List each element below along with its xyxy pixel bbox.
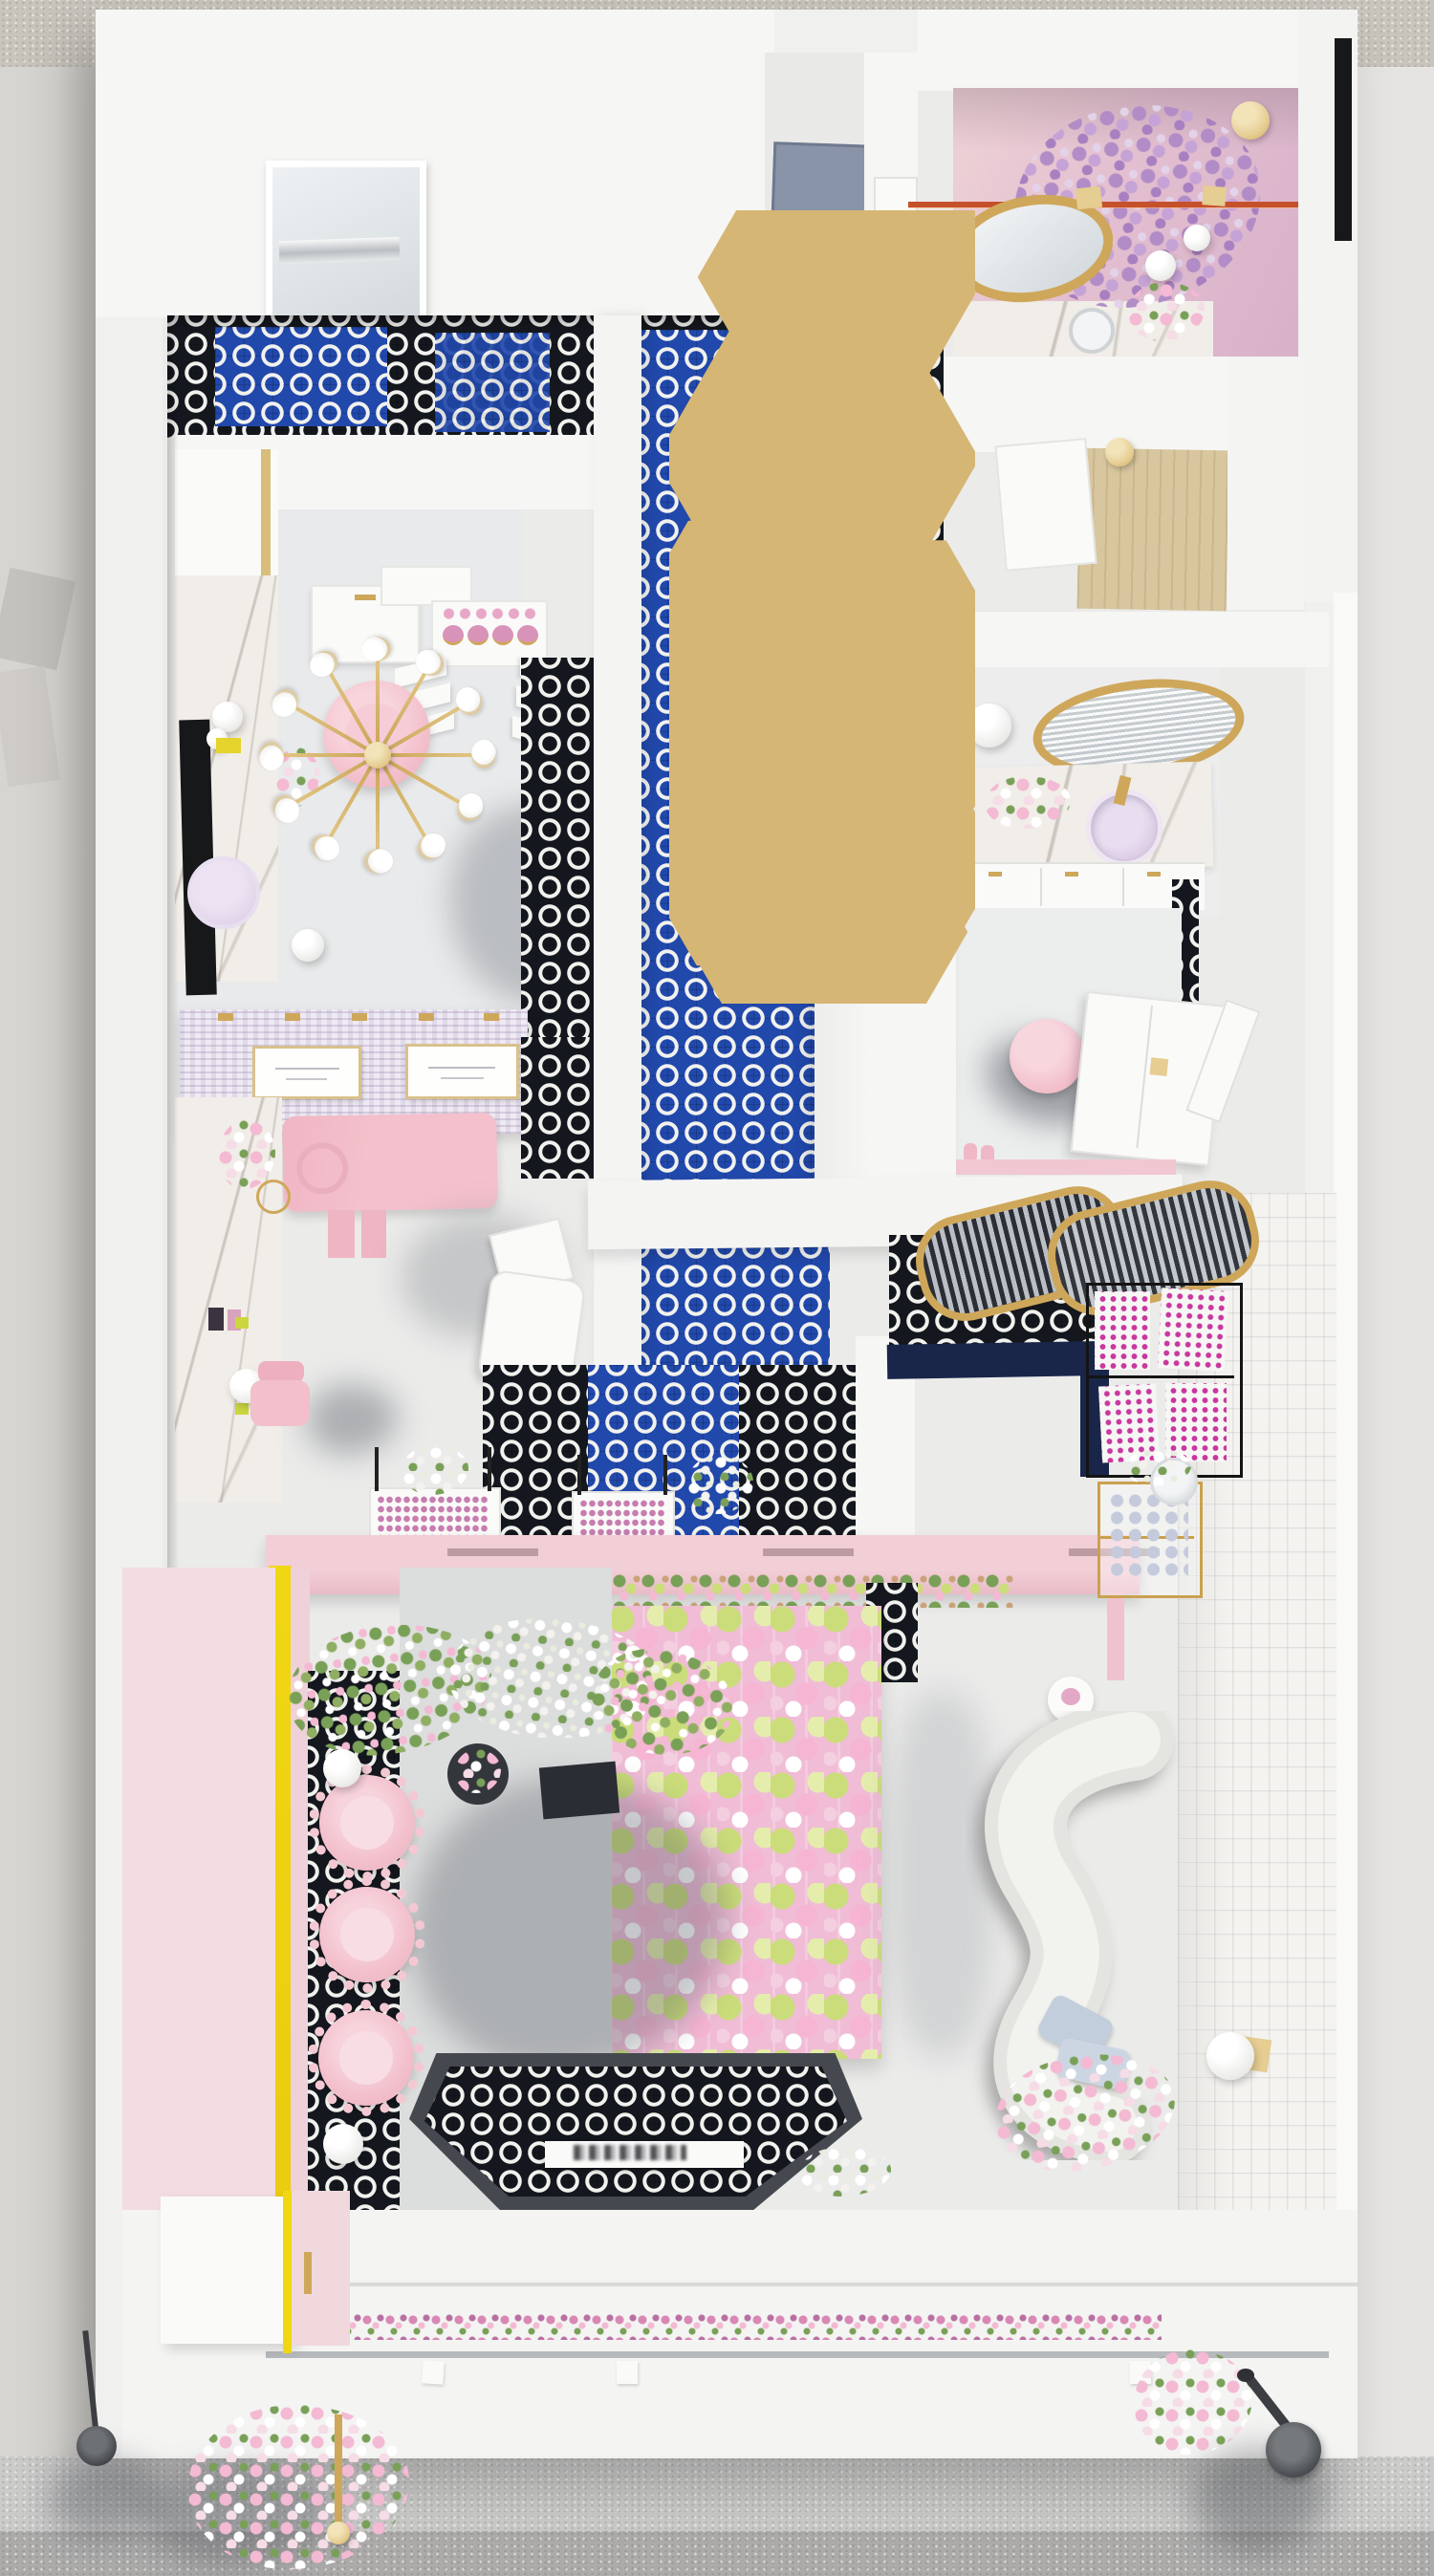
pink-round-chair xyxy=(1010,1019,1084,1093)
chandelier-spoke xyxy=(376,652,380,755)
planter-blossoms xyxy=(455,1749,501,1793)
perfume-bottles xyxy=(208,1308,224,1331)
bed-stool xyxy=(361,1210,386,1258)
bar-slot xyxy=(447,1548,538,1556)
polish-box xyxy=(1165,1383,1227,1461)
white-wardrobe xyxy=(1071,991,1227,1166)
gold-slider xyxy=(1075,186,1102,210)
gold-handle xyxy=(355,595,376,600)
vestibule-pillar xyxy=(161,2197,293,2344)
gold-clip xyxy=(352,1013,367,1021)
pendant-ball xyxy=(1145,250,1176,281)
polish-box xyxy=(1095,1291,1150,1370)
chandelier-hub xyxy=(364,742,391,768)
storage-desk xyxy=(994,438,1097,572)
script-sign xyxy=(252,1046,361,1099)
gold-bar-cart xyxy=(1097,1482,1203,1598)
glass-mullion xyxy=(617,2361,638,2384)
ball-lamp xyxy=(323,1749,361,1787)
lavender-mirror xyxy=(187,856,260,929)
black-wall-bar xyxy=(1335,38,1352,241)
navy-edge-band xyxy=(887,1341,1098,1379)
polish-rows xyxy=(579,1499,665,1537)
bar-slot xyxy=(763,1548,854,1556)
gold-door-handle xyxy=(304,2252,312,2294)
storage-wood-floor xyxy=(1077,448,1229,612)
entry-mat xyxy=(409,2053,862,2210)
bed-headrest xyxy=(296,1142,349,1195)
bar-leg xyxy=(1107,1592,1124,1680)
left-lamp-head xyxy=(76,2426,117,2466)
box-planter xyxy=(539,1762,619,1820)
chandelier-spoke xyxy=(274,753,378,757)
tile-strip-right xyxy=(521,658,594,1040)
gold-clip xyxy=(218,1013,233,1021)
salon-render xyxy=(0,0,1434,2576)
pink-office-chair xyxy=(250,1361,314,1428)
ball-lamp xyxy=(292,929,324,962)
gold-handle xyxy=(1149,1057,1168,1076)
chandelier-spoke xyxy=(378,753,481,757)
scalloped-armchair xyxy=(319,1887,415,1982)
vanity-cabinets xyxy=(960,862,1205,910)
lime-accent xyxy=(235,1403,249,1415)
scalloped-armchair xyxy=(318,2010,414,2106)
stand-post xyxy=(488,1447,491,1491)
metal-display-shelf xyxy=(1086,1283,1243,1478)
gold-ball-lamp xyxy=(1105,438,1134,466)
vanity-room-band xyxy=(952,612,1329,667)
stand-post xyxy=(577,1455,581,1495)
chandelier-spoke xyxy=(376,755,380,858)
storage-wall-right xyxy=(1228,357,1304,610)
wall-shadow-left xyxy=(167,315,179,1568)
gold-pendant-ball xyxy=(327,2522,350,2544)
gold-deco-ring xyxy=(256,1180,291,1214)
facade-seam xyxy=(315,2283,1358,2286)
street-lamp-head xyxy=(1266,2422,1321,2478)
stand-post xyxy=(375,1447,379,1491)
polish-dot xyxy=(441,608,536,619)
right-wall-low xyxy=(1334,593,1358,2457)
street-left xyxy=(0,67,96,2576)
polish-oval xyxy=(517,625,538,645)
tile-floor-blue-patch xyxy=(215,327,387,426)
gold-knob xyxy=(1065,872,1078,877)
vestibule-pink-wall xyxy=(287,2191,350,2346)
bed-stool xyxy=(328,1210,355,1258)
gold-rail xyxy=(908,202,1300,207)
street-right xyxy=(1358,67,1434,2576)
window-bar xyxy=(279,237,401,264)
gold-clip xyxy=(419,1013,434,1021)
vanity-hand-mirror xyxy=(1069,308,1115,354)
hexagon-pendants xyxy=(669,210,975,1004)
gold-clip xyxy=(484,1013,499,1021)
polish-oval xyxy=(492,625,513,645)
tile-patch xyxy=(739,1365,858,1539)
lash-bed xyxy=(282,1113,498,1212)
sputnik-chandelier xyxy=(263,640,492,870)
tile-strip-right xyxy=(521,1037,594,1179)
yellow-item xyxy=(216,738,241,753)
cabinet-seam xyxy=(1122,868,1124,906)
garland xyxy=(612,1573,1013,1608)
gold-trim xyxy=(261,449,271,575)
gold-slider xyxy=(1202,185,1226,206)
gold-disc xyxy=(1231,101,1270,140)
cabinet-seam xyxy=(1040,868,1042,906)
gold-pendant-rod xyxy=(335,2414,342,2531)
tile-floor-blue-patch xyxy=(435,333,550,432)
flower-planter-row xyxy=(315,2313,1162,2340)
stand-post xyxy=(663,1455,667,1495)
pink-ledge xyxy=(956,1159,1176,1175)
scalloped-armchair xyxy=(319,1775,415,1871)
gold-knob xyxy=(1147,872,1161,877)
glass-mullion xyxy=(422,2360,445,2384)
pendant-ball xyxy=(1184,225,1210,251)
round-planter xyxy=(447,1743,509,1805)
ball-lamp xyxy=(323,2124,363,2164)
powder-room-wall xyxy=(918,10,1300,91)
polish-box xyxy=(1158,1288,1228,1372)
lime-accent xyxy=(235,1317,249,1329)
gold-clip xyxy=(285,1013,300,1021)
chair-seat xyxy=(250,1380,310,1426)
massage-chair xyxy=(478,1225,583,1388)
script-sign xyxy=(405,1044,519,1099)
wardrobe-door-line xyxy=(1136,1006,1153,1148)
chair-back xyxy=(258,1361,304,1382)
pink-deco xyxy=(1061,1688,1080,1705)
polish-rows xyxy=(377,1495,489,1537)
vestibule-yellow-line xyxy=(283,2191,292,2353)
gold-knob xyxy=(989,872,1002,877)
street-lamp-bracket xyxy=(1237,2369,1254,2382)
desk-logo xyxy=(574,2145,686,2160)
shelf-mid-bar xyxy=(1089,1375,1234,1378)
